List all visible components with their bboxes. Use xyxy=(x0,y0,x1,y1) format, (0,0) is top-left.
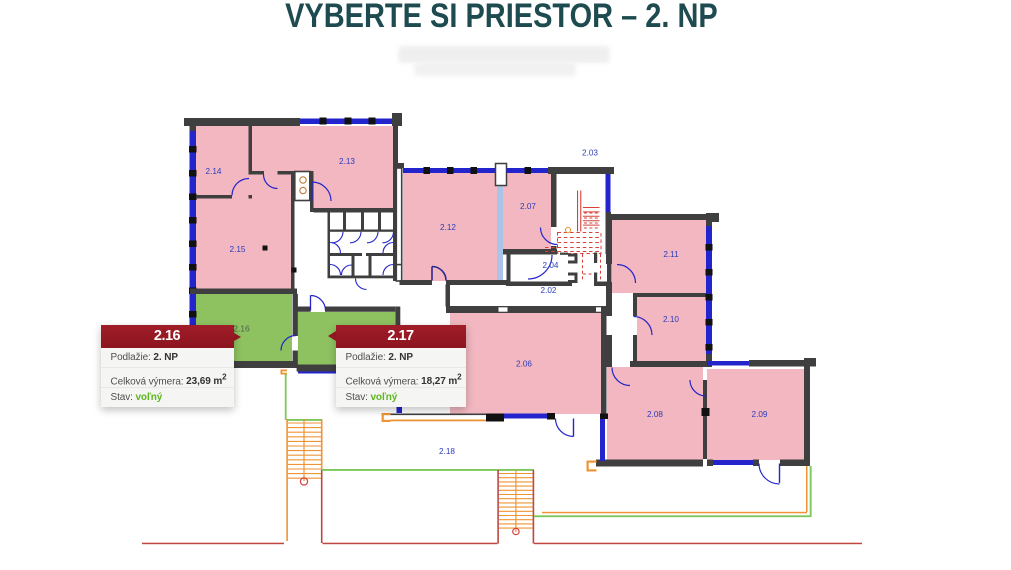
svg-text:2.09: 2.09 xyxy=(752,410,768,419)
svg-text:2.15: 2.15 xyxy=(230,245,246,254)
svg-text:2.12: 2.12 xyxy=(440,223,456,232)
svg-text:2.13: 2.13 xyxy=(339,157,355,166)
svg-text:2.04: 2.04 xyxy=(543,261,559,270)
svg-text:2.08: 2.08 xyxy=(647,410,663,419)
svg-text:2.10: 2.10 xyxy=(663,315,679,324)
svg-text:2.11: 2.11 xyxy=(663,250,679,259)
svg-text:2.18: 2.18 xyxy=(439,447,455,456)
svg-text:2.07: 2.07 xyxy=(520,202,536,211)
svg-text:2.02: 2.02 xyxy=(541,286,557,295)
svg-text:2.14: 2.14 xyxy=(206,167,222,176)
svg-text:2.03: 2.03 xyxy=(582,149,598,158)
svg-text:2.06: 2.06 xyxy=(516,360,532,369)
